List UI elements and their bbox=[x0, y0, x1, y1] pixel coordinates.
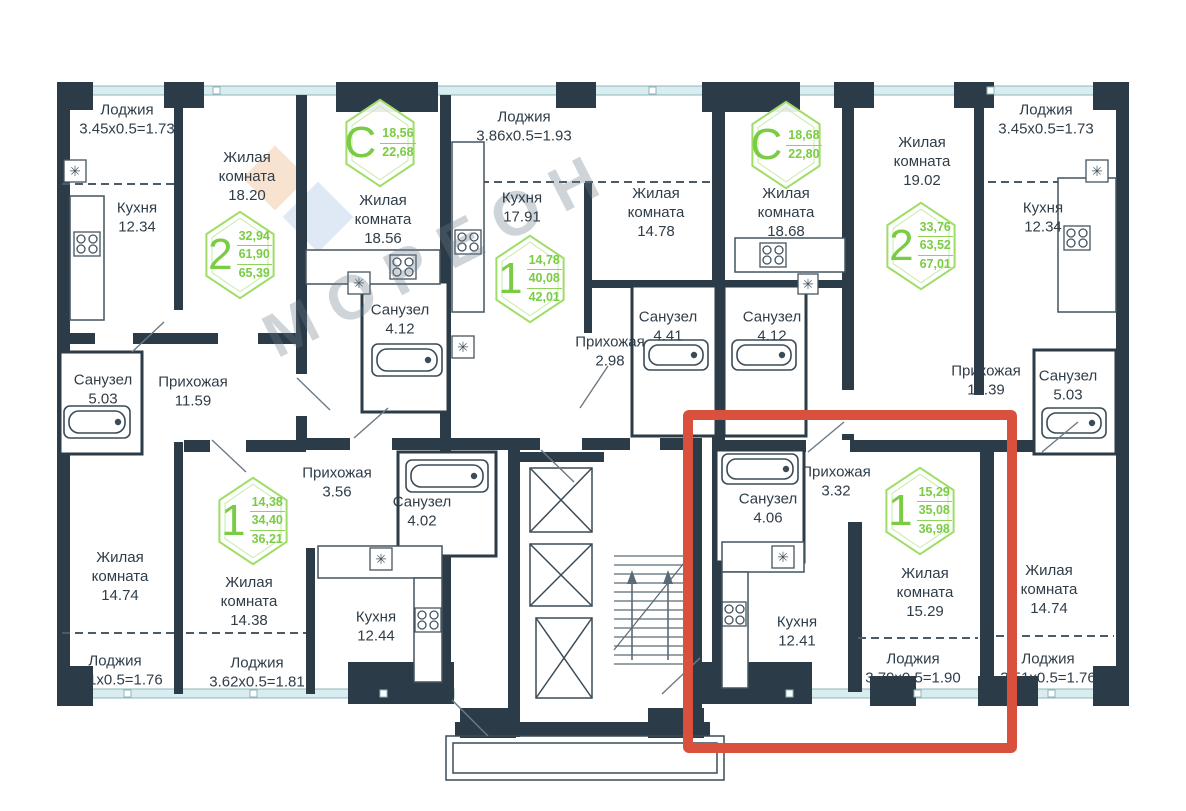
apartment-badge[interactable]: C 18,5622,68 bbox=[340, 98, 420, 188]
floor-plan: ✳✳✳ ✳✳✳ ✳ bbox=[0, 0, 1186, 811]
apartment-area-value: 18,56 bbox=[380, 125, 415, 144]
badge-body: C 18,5622,68 bbox=[340, 98, 420, 188]
apartment-areas: 14,3834,4036,21 bbox=[250, 494, 285, 549]
apartment-area-value: 63,52 bbox=[918, 237, 953, 256]
apartment-area-value: 22,80 bbox=[786, 146, 821, 164]
apartment-area-value: 22,68 bbox=[380, 144, 415, 162]
apartment-area-value: 42,01 bbox=[527, 289, 562, 307]
apartment-area-value: 32,94 bbox=[237, 228, 272, 247]
apartment-type: 1 bbox=[221, 499, 245, 543]
apartment-area-value: 14,38 bbox=[250, 494, 285, 513]
highlight-rectangle[interactable] bbox=[683, 410, 1017, 753]
apartment-area-value: 61,90 bbox=[237, 246, 272, 265]
badge-body: 1 14,7840,0842,01 bbox=[490, 234, 570, 324]
apartment-area-value: 34,40 bbox=[250, 512, 285, 531]
apartment-areas: 18,6822,80 bbox=[786, 127, 821, 163]
apartment-areas: 32,9461,9065,39 bbox=[237, 228, 272, 283]
apartment-badge[interactable]: 1 14,7840,0842,01 bbox=[490, 234, 570, 324]
apartment-badge[interactable]: C 18,6822,80 bbox=[746, 100, 826, 190]
apartment-area-value: 40,08 bbox=[527, 270, 562, 289]
badge-body: 2 32,9461,9065,39 bbox=[200, 210, 280, 300]
apartment-type: 1 bbox=[498, 257, 522, 301]
apartment-badge[interactable]: 2 32,9461,9065,39 bbox=[200, 210, 280, 300]
apartment-badge[interactable]: 1 14,3834,4036,21 bbox=[213, 476, 293, 566]
apartment-areas: 14,7840,0842,01 bbox=[527, 252, 562, 307]
apartment-area-value: 65,39 bbox=[237, 265, 272, 283]
badge-body: C 18,6822,80 bbox=[746, 100, 826, 190]
apartment-badge[interactable]: 2 33,7663,5267,01 bbox=[881, 201, 961, 291]
apartment-areas: 18,5622,68 bbox=[380, 125, 415, 161]
apartment-type: C bbox=[344, 121, 376, 165]
apartment-areas: 33,7663,5267,01 bbox=[918, 219, 953, 274]
apartment-type: C bbox=[750, 123, 782, 167]
apartment-area-value: 33,76 bbox=[918, 219, 953, 238]
apartment-type: 2 bbox=[208, 233, 232, 277]
apartment-area-value: 36,21 bbox=[250, 531, 285, 549]
apartment-area-value: 14,78 bbox=[527, 252, 562, 271]
apartment-area-value: 67,01 bbox=[918, 256, 953, 274]
badge-body: 2 33,7663,5267,01 bbox=[881, 201, 961, 291]
badge-body: 1 14,3834,4036,21 bbox=[213, 476, 293, 566]
apartment-type: 2 bbox=[889, 224, 913, 268]
apartment-area-value: 18,68 bbox=[786, 127, 821, 146]
